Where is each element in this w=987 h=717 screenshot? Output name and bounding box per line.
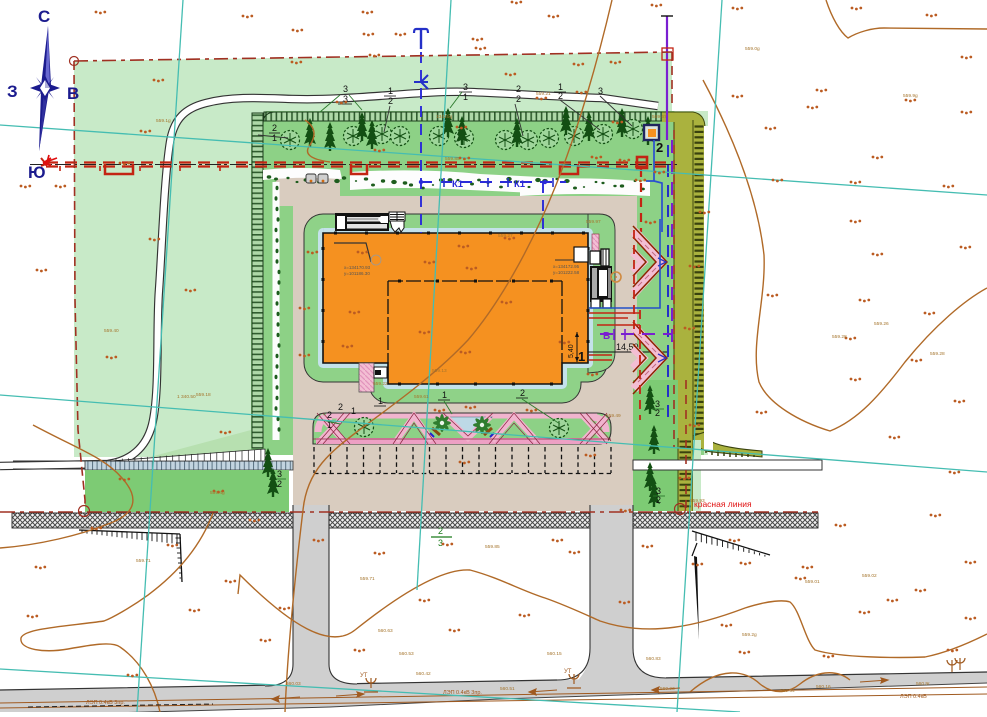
- svg-text:560.53: 560.53: [399, 651, 414, 657]
- svg-text:560.42: 560.42: [416, 671, 431, 677]
- svg-text:559.71: 559.71: [136, 558, 151, 564]
- svg-text:1 340.50: 1 340.50: [177, 394, 196, 400]
- svg-text:559.4g: 559.4g: [210, 490, 225, 496]
- svg-text:560.16: 560.16: [816, 684, 831, 690]
- svg-text:2: 2: [558, 91, 563, 101]
- svg-text:559.28: 559.28: [832, 334, 847, 340]
- svg-text:1: 1: [463, 92, 468, 102]
- svg-text:3: 3: [343, 84, 348, 94]
- svg-text:В: В: [603, 331, 610, 342]
- svg-text:2: 2: [656, 495, 661, 505]
- svg-text:В: В: [67, 84, 79, 103]
- svg-text:559.1g: 559.1g: [156, 118, 171, 124]
- svg-text:К1: К1: [452, 179, 464, 190]
- svg-text:3: 3: [598, 86, 603, 96]
- svg-text:y=101222.58: y=101222.58: [553, 270, 580, 275]
- svg-text:y=101186.30: y=101186.30: [344, 271, 370, 276]
- svg-text:560.03: 560.03: [286, 681, 301, 687]
- svg-text:2: 2: [516, 84, 521, 94]
- svg-text:x=134170.93: x=134170.93: [344, 265, 371, 270]
- svg-text:560.15: 560.15: [547, 651, 562, 657]
- svg-text:К1: К1: [514, 179, 526, 190]
- svg-text:1: 1: [388, 86, 393, 96]
- svg-text:560.51: 560.51: [500, 686, 515, 692]
- svg-text:559.26: 559.26: [874, 321, 889, 327]
- svg-text:2: 2: [438, 526, 443, 536]
- svg-text:1342бg: 1342бg: [436, 114, 452, 120]
- svg-text:2: 2: [277, 479, 282, 489]
- svg-text:2: 2: [520, 388, 525, 398]
- svg-text:560.23: 560.23: [660, 686, 675, 692]
- svg-text:559.49: 559.49: [606, 413, 621, 419]
- svg-text:ЛЭП 0.4кВ: ЛЭП 0.4кВ: [900, 694, 927, 700]
- svg-text:559.71: 559.71: [360, 576, 375, 582]
- svg-text:1: 1: [378, 396, 383, 406]
- svg-text:2: 2: [516, 94, 521, 104]
- svg-text:2: 2: [655, 408, 660, 418]
- svg-text:559.85: 559.85: [485, 544, 500, 550]
- svg-text:559.21: 559.21: [536, 91, 551, 97]
- svg-text:559.02: 559.02: [862, 573, 877, 579]
- svg-text:УТ: УТ: [360, 673, 368, 679]
- svg-text:560.9г: 560.9г: [916, 681, 930, 687]
- svg-text:1: 1: [351, 406, 356, 416]
- svg-text:2: 2: [656, 140, 663, 155]
- svg-text:559.61: 559.61: [414, 394, 429, 400]
- svg-text:ЛЭП 0.4кВ 3пр.: ЛЭП 0.4кВ 3пр.: [443, 690, 482, 696]
- svg-text:Ю: Ю: [28, 163, 46, 182]
- svg-text:559.0g: 559.0g: [745, 46, 760, 52]
- svg-text:1: 1: [272, 133, 277, 143]
- svg-text:559.28: 559.28: [930, 351, 945, 357]
- svg-text:1: 1: [578, 349, 585, 364]
- svg-text:560.83: 560.83: [646, 656, 661, 662]
- svg-text:2: 2: [327, 410, 332, 420]
- svg-text:559.97: 559.97: [586, 219, 601, 225]
- svg-text:559.40: 559.40: [104, 328, 119, 334]
- svg-text:2: 2: [388, 96, 393, 106]
- svg-text:3: 3: [277, 469, 282, 479]
- svg-text:560.63: 560.63: [378, 628, 393, 634]
- svg-text:2: 2: [338, 402, 343, 412]
- svg-text:УТ: УТ: [564, 669, 572, 675]
- svg-text:559.93: 559.93: [690, 498, 705, 504]
- svg-text:559.01: 559.01: [805, 579, 820, 585]
- svg-text:559.67: 559.67: [652, 114, 667, 120]
- svg-text:x=134172.95: x=134172.95: [553, 264, 580, 269]
- svg-text:С: С: [38, 7, 50, 26]
- svg-text:559.27: 559.27: [498, 233, 513, 239]
- svg-text:559.2g: 559.2g: [742, 632, 757, 638]
- svg-text:1: 1: [442, 390, 447, 400]
- svg-text:559.85: 559.85: [445, 156, 460, 162]
- svg-text:5,40: 5,40: [568, 344, 575, 358]
- svg-text:559.9g: 559.9g: [903, 93, 918, 99]
- svg-text:3: 3: [463, 82, 468, 92]
- svg-text:559.18: 559.18: [196, 392, 211, 398]
- svg-text:560.54: 560.54: [780, 688, 795, 694]
- svg-text:559.13: 559.13: [432, 368, 447, 374]
- svg-text:З: З: [7, 82, 18, 101]
- svg-text:2: 2: [272, 123, 277, 133]
- svg-text:ЛЭП 0.4кВ 3пр.: ЛЭП 0.4кВ 3пр.: [86, 700, 125, 706]
- svg-text:559.22: 559.22: [373, 381, 388, 387]
